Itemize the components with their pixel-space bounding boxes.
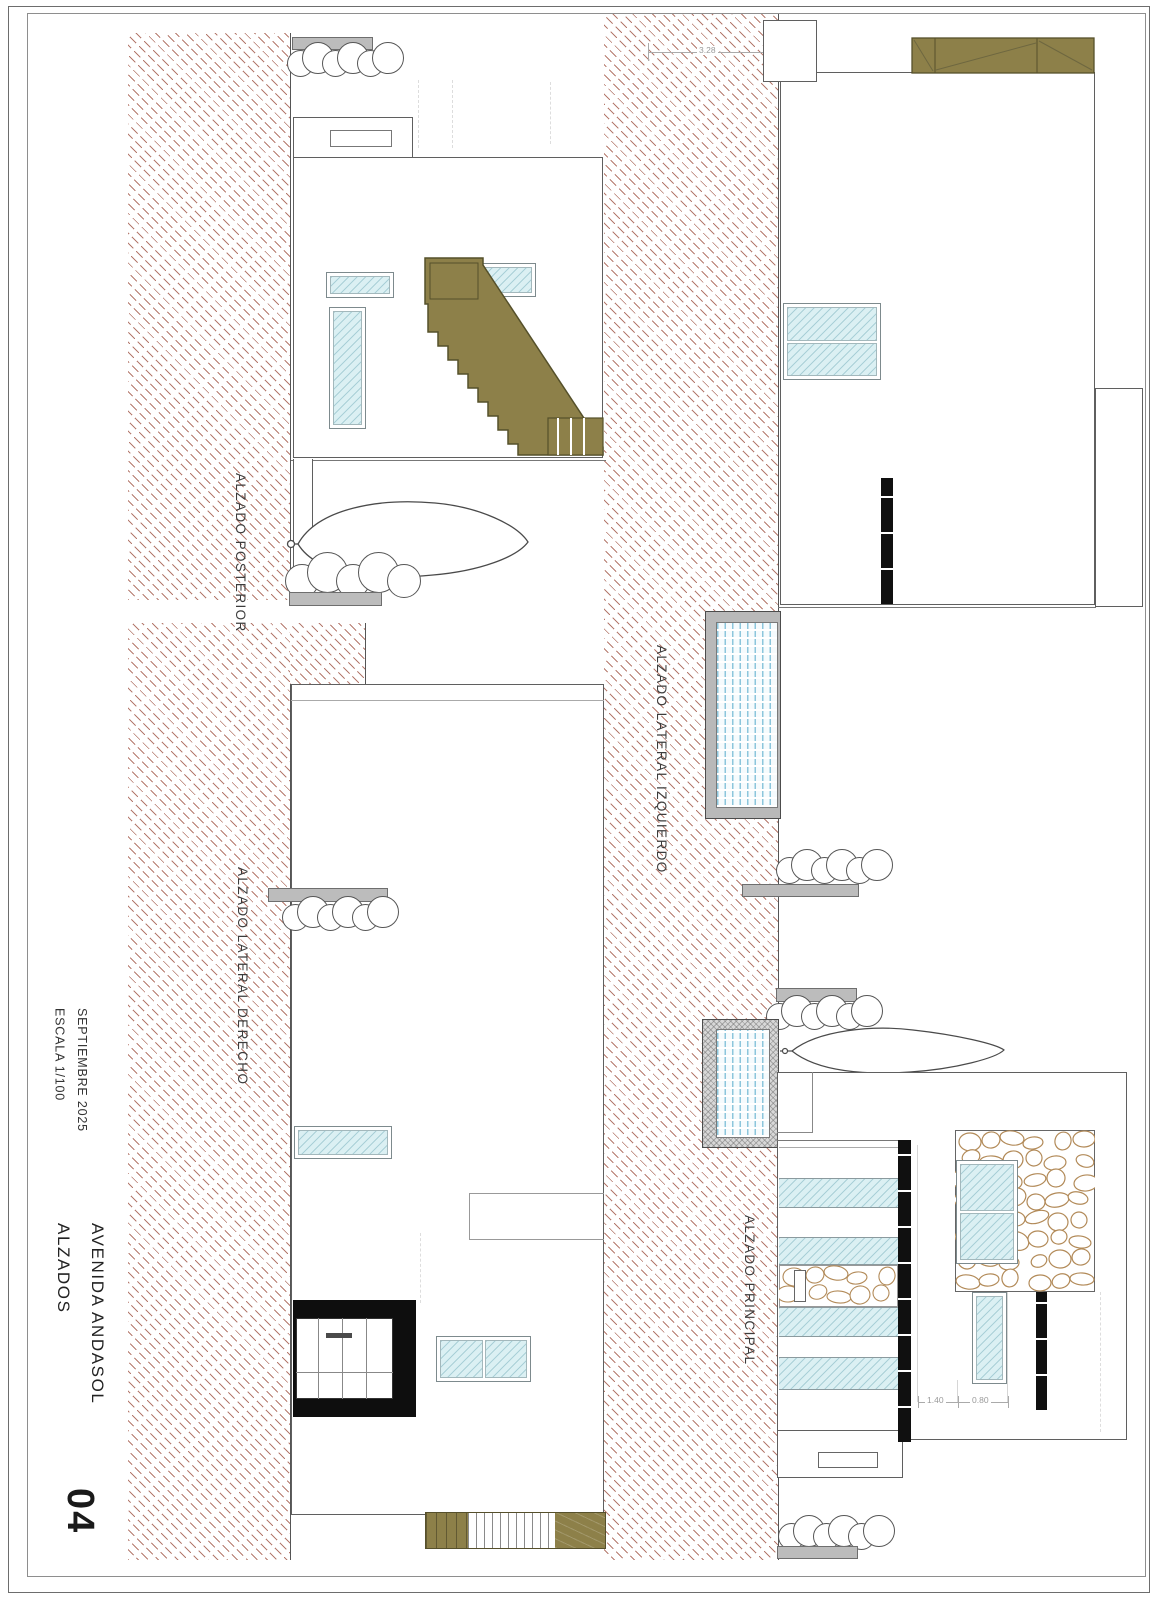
glazing-band — [779, 1307, 898, 1337]
drawing-sheet: ALZADO POSTERIOR 3.28 ALZADO LATERAL IZQ… — [0, 0, 1159, 1600]
planter-band — [289, 592, 382, 606]
dimension-text: 3.28 — [697, 46, 718, 55]
glazing-band — [779, 1237, 898, 1265]
sheet-title: ALZADOS — [46, 1223, 80, 1404]
dimension-tick — [648, 43, 649, 61]
shrub-row — [287, 42, 404, 77]
shrub-row — [282, 896, 399, 931]
sheet-date: SEPTIEMBRE 2025 — [71, 1008, 94, 1132]
dimension-text: 0.80 — [970, 1396, 991, 1405]
dark-pillar — [881, 478, 893, 604]
door-handle — [326, 1333, 352, 1338]
mullion-line — [779, 1147, 898, 1148]
letterbox-vent — [818, 1452, 878, 1468]
dimension-tick — [1008, 1396, 1009, 1408]
leader-dash — [550, 82, 551, 144]
facade-step — [469, 1193, 604, 1240]
window-two-pane — [436, 1336, 531, 1382]
glazing-band — [779, 1357, 898, 1390]
window-slim — [972, 1292, 1007, 1384]
stone-band-door — [794, 1270, 806, 1302]
parapet-opening — [330, 130, 392, 147]
shrub-row — [776, 849, 893, 884]
extension-line — [917, 1145, 918, 1402]
dark-pillar — [1036, 1292, 1047, 1410]
dark-pillar — [898, 1140, 911, 1442]
cypress-tree — [778, 1024, 1010, 1078]
window-strip — [326, 272, 394, 298]
leader-dash — [452, 80, 453, 148]
louver-slats — [716, 622, 778, 808]
door-mullion — [366, 1318, 367, 1399]
elevation-label-lateral-derecho: ALZADO LATERAL DERECHO — [235, 867, 250, 1085]
dimension-tick — [918, 1396, 919, 1408]
terrain-hatch-derecho-step — [290, 623, 366, 684]
sheet-titles: AVENIDA ANDASOL ALZADOS — [46, 1223, 114, 1404]
window-tall — [329, 307, 366, 429]
leader-dash — [420, 1233, 421, 1303]
sheet-scale: ESCALA 1/100 — [48, 1008, 71, 1132]
sheet-number: 04 — [58, 1488, 101, 1534]
terrain-hatch-derecho — [128, 623, 291, 1560]
exterior-stair — [420, 255, 610, 460]
stair-band — [425, 1512, 606, 1549]
door-mullion — [342, 1318, 343, 1399]
stair-rungs — [468, 1513, 555, 1548]
door-mullion — [318, 1318, 319, 1399]
window-strip — [294, 1126, 392, 1159]
leader-dash — [418, 80, 419, 148]
stair-stringer-right — [555, 1513, 605, 1548]
shrub-row — [778, 1515, 895, 1550]
louver-screen — [702, 1019, 779, 1148]
door-rail — [296, 1372, 393, 1373]
project-title: AVENIDA ANDASOL — [80, 1223, 114, 1404]
band-top-line — [777, 1140, 898, 1141]
louver-slats — [716, 1029, 770, 1138]
leader-dash — [1100, 1292, 1101, 1432]
sheet-meta: SEPTIEMBRE 2025 ESCALA 1/100 — [48, 1008, 93, 1132]
door-glazing — [296, 1318, 393, 1399]
roof-access-box — [763, 20, 817, 82]
dimension-tick — [958, 1396, 959, 1408]
ground-line — [778, 607, 1096, 608]
extension-line — [1007, 1292, 1008, 1402]
elevation-label-lateral-izquierdo: ALZADO LATERAL IZQUIERDO — [654, 645, 669, 874]
terrace-band — [742, 884, 859, 897]
dimension-text: 1.40 — [925, 1396, 946, 1405]
ground-line — [291, 460, 606, 461]
terrain-hatch-posterior — [128, 33, 291, 600]
roof-step — [777, 1072, 813, 1133]
parapet-line — [291, 700, 604, 701]
elevation-label-principal: ALZADO PRINCIPAL — [742, 1215, 757, 1365]
stair-stringer-left — [426, 1513, 468, 1548]
window-two-pane — [783, 303, 881, 380]
planter-band — [777, 1546, 858, 1559]
window-in-stone — [956, 1160, 1018, 1264]
glazing-band — [779, 1178, 898, 1208]
wood-fence — [911, 37, 1095, 74]
elevation-label-posterior: ALZADO POSTERIOR — [233, 473, 248, 633]
rear-low-volume — [1095, 388, 1143, 607]
louver-screen — [705, 611, 781, 819]
